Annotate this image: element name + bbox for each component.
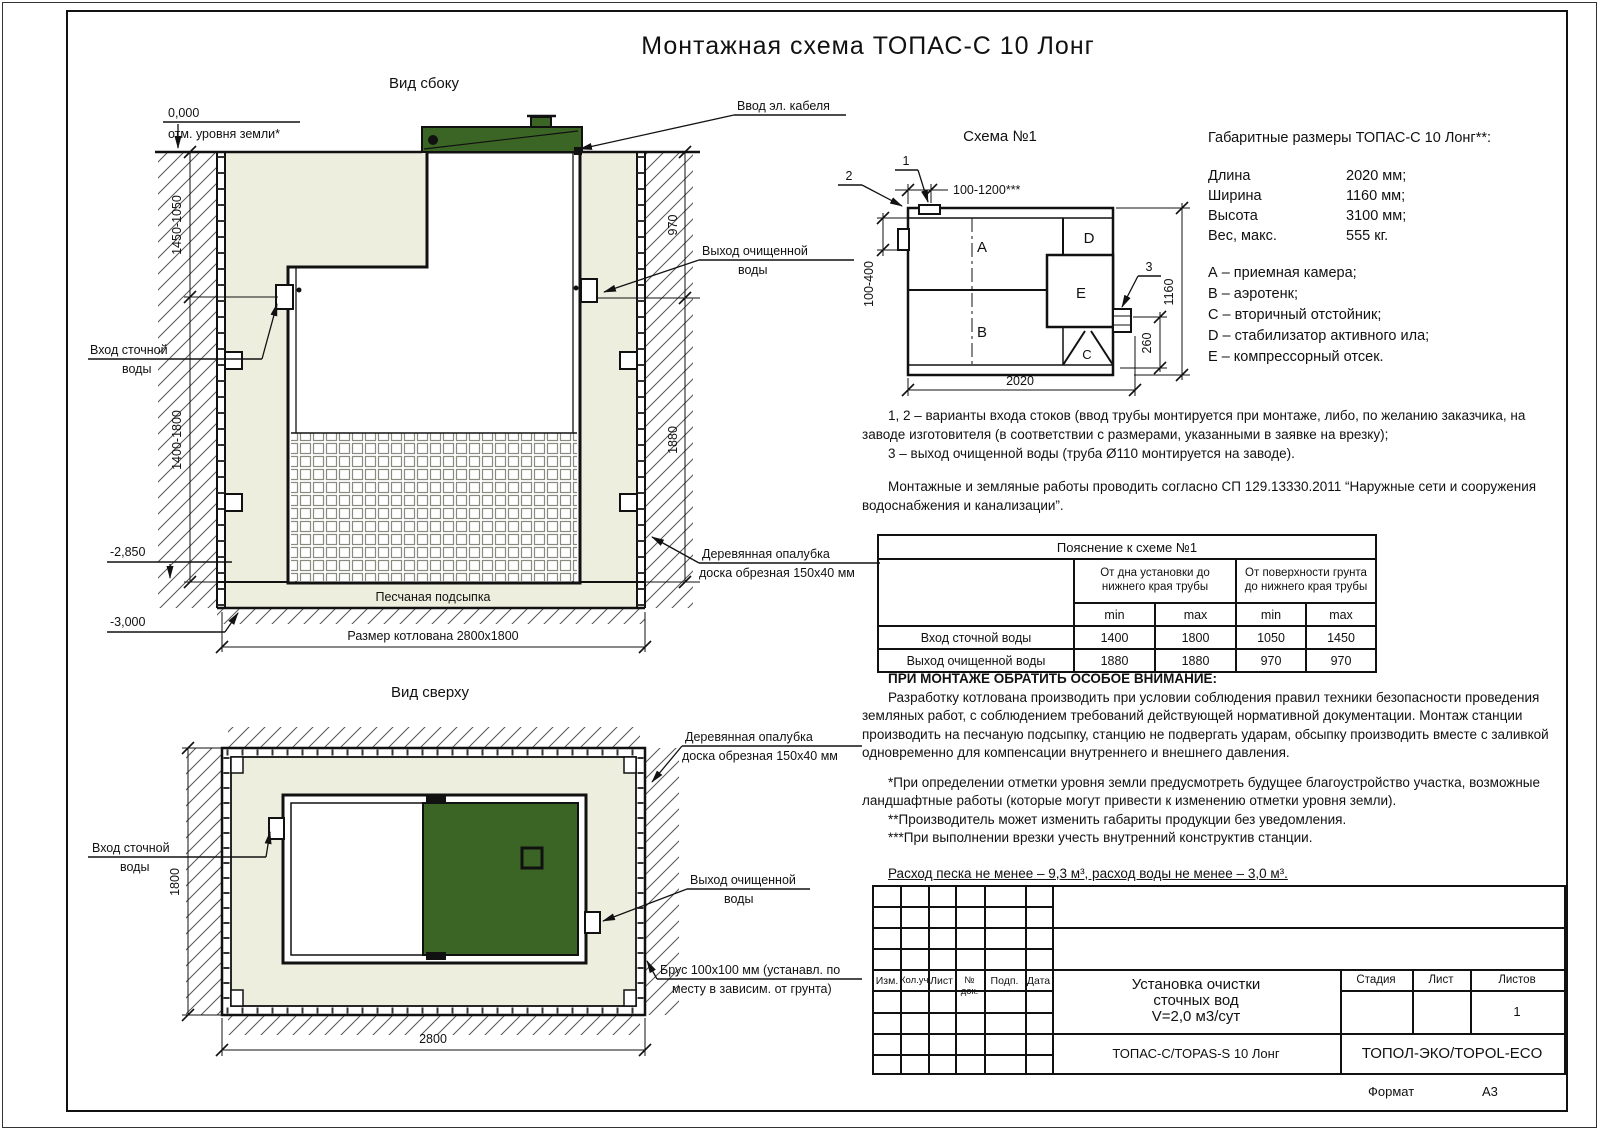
dim-label: 100-400 bbox=[862, 261, 876, 307]
spec-row: Вес, макс.555 кг. bbox=[1208, 226, 1548, 246]
footnote-3: ***При выполнении врезки учесть внутренн… bbox=[862, 829, 1554, 848]
dim-label: 970 bbox=[666, 215, 680, 236]
chamber-c: C bbox=[1082, 347, 1091, 362]
note-outlet: 3 – выход очищенной воды (труба Ø110 мон… bbox=[862, 444, 1550, 463]
col-max: max bbox=[1155, 603, 1236, 626]
footnote-1: *При определении отметки уровня земли пр… bbox=[862, 774, 1554, 811]
note-variants: 1, 2 – варианты входа стоков (ввод трубы… bbox=[862, 406, 1550, 444]
table-row: Вход сточной воды 1400 1800 1050 1450 bbox=[878, 626, 1376, 649]
tank-lid-top bbox=[423, 803, 578, 955]
footnote-2: **Производитель может изменить габариты … bbox=[862, 811, 1554, 830]
earth-hatch-top bbox=[228, 727, 640, 748]
inlet-stub-side bbox=[276, 285, 293, 309]
sheet-label: Лист bbox=[1412, 969, 1470, 990]
notes-block: 1, 2 – варианты входа стоков (ввод трубы… bbox=[862, 406, 1550, 515]
consumption-note: Расход песка не менее – 9,3 м³, расход в… bbox=[862, 865, 1554, 884]
earth-hatch-left bbox=[158, 153, 217, 608]
inlet-label: Вход сточной bbox=[92, 841, 170, 855]
legend-item: Е – компрессорный отсек. bbox=[1208, 347, 1548, 368]
tank-lower-section bbox=[291, 433, 577, 581]
side-view: Вид сбоку bbox=[88, 75, 880, 653]
product-name: ТОПАС-С/TOPAS-S 10 Лонг bbox=[1054, 1033, 1338, 1073]
col-podp: Подп. bbox=[984, 975, 1025, 987]
format-label: Формат bbox=[1368, 1084, 1414, 1099]
dim-label: 1880 bbox=[666, 426, 680, 454]
lid-vent bbox=[531, 117, 551, 127]
format-value: А3 bbox=[1482, 1084, 1498, 1099]
formwork-label: Деревянная опалубка bbox=[702, 547, 830, 561]
marker-1: 1 bbox=[903, 154, 910, 168]
spec-row: Длина2020 мм; bbox=[1208, 166, 1548, 186]
earth-hatch-left bbox=[186, 748, 222, 1015]
beam-label: месту в зависим. от грунта) bbox=[672, 982, 832, 996]
col-data: Дата bbox=[1025, 975, 1052, 987]
dimensions-panel: Габаритные размеры ТОПАС-С 10 Лонг**: Дл… bbox=[1208, 128, 1548, 368]
col-max: max bbox=[1306, 603, 1376, 626]
inlet-stub-top bbox=[269, 818, 284, 839]
dim-label: 2020 bbox=[1006, 374, 1034, 388]
spec-row: Ширина1160 мм; bbox=[1208, 186, 1548, 206]
sheets-value: 1 bbox=[1470, 990, 1564, 1033]
outlet-stub-side bbox=[581, 279, 597, 302]
doc-title: Установка очистки сточных вод V=2,0 м3/с… bbox=[1054, 971, 1338, 1031]
inlet-label: воды bbox=[122, 362, 151, 376]
formwork-label: доска обрезная 150х40 мм bbox=[699, 566, 855, 580]
formwork-label: Деревянная опалубка bbox=[685, 730, 813, 744]
outlet-label: Выход очищенной bbox=[702, 244, 808, 258]
chamber-d: D bbox=[1084, 230, 1095, 247]
explanation-table: Пояснение к схеме №1 От дна установки до… bbox=[877, 534, 1377, 673]
dim-label: 1450-1050 bbox=[170, 195, 184, 255]
marker-2: 2 bbox=[846, 169, 853, 183]
col-ndok: № док. bbox=[955, 975, 984, 997]
sheets-label: Листов bbox=[1470, 969, 1564, 990]
mark-2850: -2,850 bbox=[110, 545, 145, 559]
dim-label: 1400-1800 bbox=[170, 410, 184, 470]
title-block: Изм. Кол.уч. Лист № док. Подп. Дата Уста… bbox=[872, 885, 1566, 1075]
chamber-legend: А – приемная камера; В – аэротенк; С – в… bbox=[1208, 263, 1548, 368]
top-view: Вид сверху bbox=[88, 684, 862, 1056]
table-title: Пояснение к схеме №1 bbox=[878, 535, 1376, 559]
col-list: Лист bbox=[928, 975, 955, 987]
legend-item: В – аэротенк; bbox=[1208, 284, 1548, 305]
dim-label: 1800 bbox=[168, 868, 182, 896]
legend-item: D – стабилизатор активного ила; bbox=[1208, 326, 1548, 347]
dim-label: 1160 bbox=[1162, 279, 1176, 306]
dim-label: 2800 bbox=[419, 1032, 447, 1046]
chamber-e: E bbox=[1076, 285, 1086, 302]
legend-item: А – приемная камера; bbox=[1208, 263, 1548, 284]
spec-row: Высота3100 мм; bbox=[1208, 206, 1548, 226]
outlet-stub-top bbox=[585, 912, 600, 933]
col-min: min bbox=[1074, 603, 1155, 626]
ground-level-label: отм. уровня земли* bbox=[168, 127, 280, 141]
stage-label: Стадия bbox=[1340, 969, 1412, 990]
inlet-label: воды bbox=[120, 860, 149, 874]
drawing-sheet: Монтажная схема ТОПАС-С 10 Лонг Вид сбок… bbox=[0, 0, 1600, 1131]
schema-title: Схема №1 bbox=[963, 128, 1037, 145]
col-koluch: Кол.уч. bbox=[900, 975, 928, 986]
marker-3: 3 bbox=[1146, 260, 1153, 274]
schema-inlet-port-1 bbox=[919, 205, 940, 214]
mark-3000: -3,000 bbox=[110, 615, 145, 629]
schema-inlet-port-2 bbox=[898, 229, 909, 250]
note-norms: Монтажные и земляные работы проводить со… bbox=[862, 477, 1550, 515]
chamber-a: A bbox=[977, 239, 987, 256]
zero-mark: 0,000 bbox=[168, 106, 199, 120]
col-izm: Изм. bbox=[874, 975, 900, 987]
beam-label: Брус 100х100 мм (устанавл. по bbox=[660, 963, 840, 977]
schema-outlet-port bbox=[1113, 309, 1131, 332]
outlet-label: воды bbox=[738, 263, 767, 277]
formwork-label: доска обрезная 150х40 мм bbox=[682, 749, 838, 763]
specs-heading: Габаритные размеры ТОПАС-С 10 Лонг**: bbox=[1208, 128, 1548, 148]
dim-label: 100-1200*** bbox=[953, 183, 1021, 197]
col-min: min bbox=[1236, 603, 1306, 626]
table-row: Выход очищенной воды 1880 1880 970 970 bbox=[878, 649, 1376, 672]
lid-hinge bbox=[428, 135, 438, 145]
legend-item: С – вторичный отстойник; bbox=[1208, 305, 1548, 326]
schema-1: Схема №1 A B C D E bbox=[838, 128, 1190, 396]
top-view-title: Вид сверху bbox=[391, 684, 470, 701]
attention-block: ПРИ МОНТАЖЕ ОБРАТИТЬ ОСОБОЕ ВНИМАНИЕ: Ра… bbox=[862, 670, 1554, 883]
col-group-2: От поверхности грунта до нижнего края тр… bbox=[1236, 559, 1376, 603]
company-name: ТОПОЛ-ЭКО/TOPOL-ECO bbox=[1340, 1033, 1564, 1073]
earth-hatch-bottom bbox=[217, 609, 645, 624]
side-view-title: Вид сбоку bbox=[389, 75, 459, 92]
attention-heading: ПРИ МОНТАЖЕ ОБРАТИТЬ ОСОБОЕ ВНИМАНИЕ: bbox=[862, 670, 1554, 689]
pit-size-label: Размер котлована 2800х1800 bbox=[347, 629, 518, 643]
chamber-b: B bbox=[977, 324, 987, 341]
dim-label: 260 bbox=[1140, 333, 1154, 354]
inlet-label: Вход сточной bbox=[90, 343, 168, 357]
attention-body: Разработку котлована производить при усл… bbox=[862, 689, 1554, 763]
outlet-label: воды bbox=[724, 892, 753, 906]
outlet-label: Выход очищенной bbox=[690, 873, 796, 887]
cable-entry-label: Ввод эл. кабеля bbox=[737, 99, 830, 113]
col-group-1: От дна установки до нижнего края трубы bbox=[1074, 559, 1236, 603]
bedding-label: Песчаная подсыпка bbox=[375, 590, 490, 604]
